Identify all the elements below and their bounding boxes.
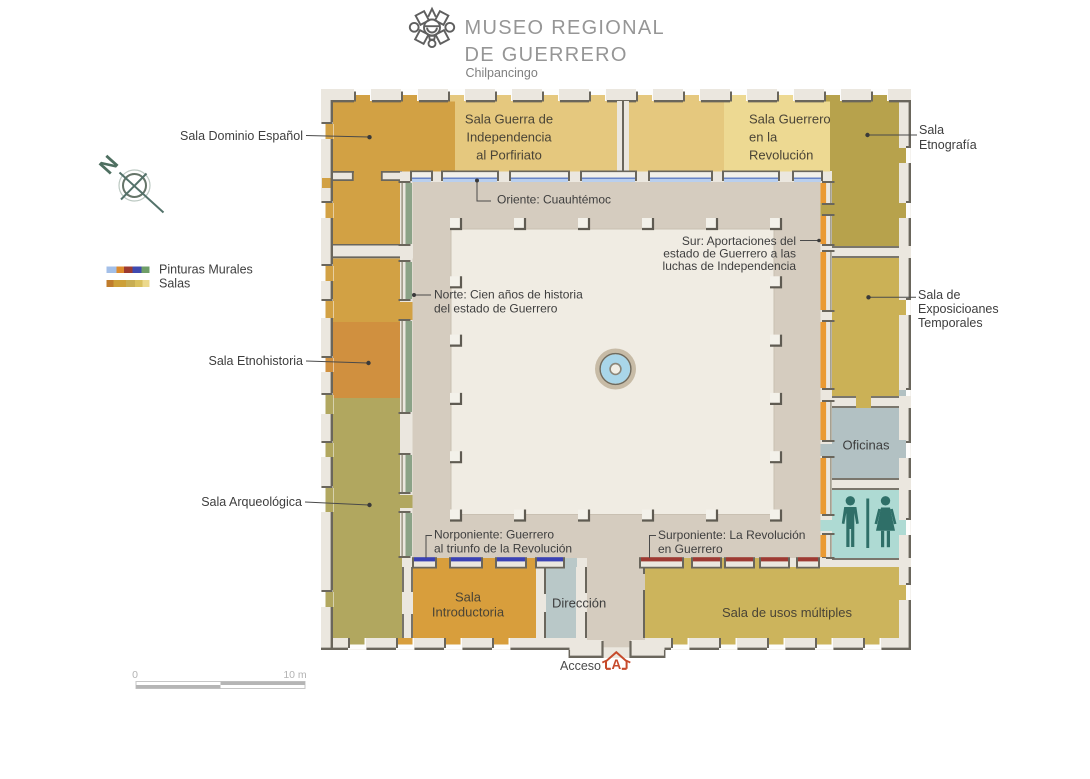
svg-text:Sala Guerrero: Sala Guerrero bbox=[749, 112, 831, 127]
svg-text:Sala: Sala bbox=[919, 123, 944, 137]
svg-text:Pinturas Murales: Pinturas Murales bbox=[159, 263, 253, 277]
svg-text:Sala: Sala bbox=[455, 590, 482, 605]
svg-text:Dirección: Dirección bbox=[552, 596, 606, 611]
svg-text:0: 0 bbox=[132, 669, 138, 681]
svg-text:Revolución: Revolución bbox=[749, 148, 813, 163]
svg-text:en Guerrero: en Guerrero bbox=[658, 542, 723, 556]
svg-text:Oriente: Cuauhtémoc: Oriente: Cuauhtémoc bbox=[497, 193, 611, 207]
svg-text:en la: en la bbox=[749, 130, 778, 145]
svg-text:Etnografía: Etnografía bbox=[919, 138, 977, 152]
svg-text:al triunfo de la Revolución: al triunfo de la Revolución bbox=[434, 542, 572, 556]
svg-text:Sala Arqueológica: Sala Arqueológica bbox=[201, 495, 302, 509]
svg-text:Norponiente: Guerrero: Norponiente: Guerrero bbox=[434, 528, 554, 542]
svg-text:luchas de Independencia: luchas de Independencia bbox=[663, 259, 797, 273]
svg-text:MUSEO REGIONAL: MUSEO REGIONAL bbox=[465, 17, 665, 39]
svg-text:Sala de: Sala de bbox=[918, 288, 960, 302]
svg-text:del estado de Guerrero: del estado de Guerrero bbox=[434, 302, 558, 316]
svg-text:Sala de usos múltiples: Sala de usos múltiples bbox=[722, 605, 853, 620]
svg-text:Sala Guerra de: Sala Guerra de bbox=[465, 112, 553, 127]
svg-text:DE GUERRERO: DE GUERRERO bbox=[465, 44, 628, 66]
svg-text:Chilpancingo: Chilpancingo bbox=[466, 66, 538, 80]
svg-text:Surponiente: La Revolución: Surponiente: La Revolución bbox=[658, 528, 805, 542]
svg-text:Acceso: Acceso bbox=[560, 659, 601, 673]
svg-text:Exposicioanes: Exposicioanes bbox=[918, 302, 999, 316]
svg-text:Oficinas: Oficinas bbox=[843, 438, 890, 453]
svg-text:Norte: Cien años de historia: Norte: Cien años de historia bbox=[434, 288, 583, 302]
svg-text:al Porfiriato: al Porfiriato bbox=[476, 148, 542, 163]
svg-text:Temporales: Temporales bbox=[918, 316, 983, 330]
svg-text:10 m: 10 m bbox=[283, 669, 307, 681]
svg-text:Sala Dominio Español: Sala Dominio Español bbox=[180, 129, 303, 143]
svg-text:Salas: Salas bbox=[159, 277, 190, 291]
svg-text:A: A bbox=[612, 657, 622, 672]
svg-text:Independencia: Independencia bbox=[466, 130, 552, 145]
svg-text:Introductoria: Introductoria bbox=[432, 605, 505, 620]
svg-text:Sala Etnohistoria: Sala Etnohistoria bbox=[208, 354, 303, 368]
svg-text:N: N bbox=[94, 150, 123, 179]
